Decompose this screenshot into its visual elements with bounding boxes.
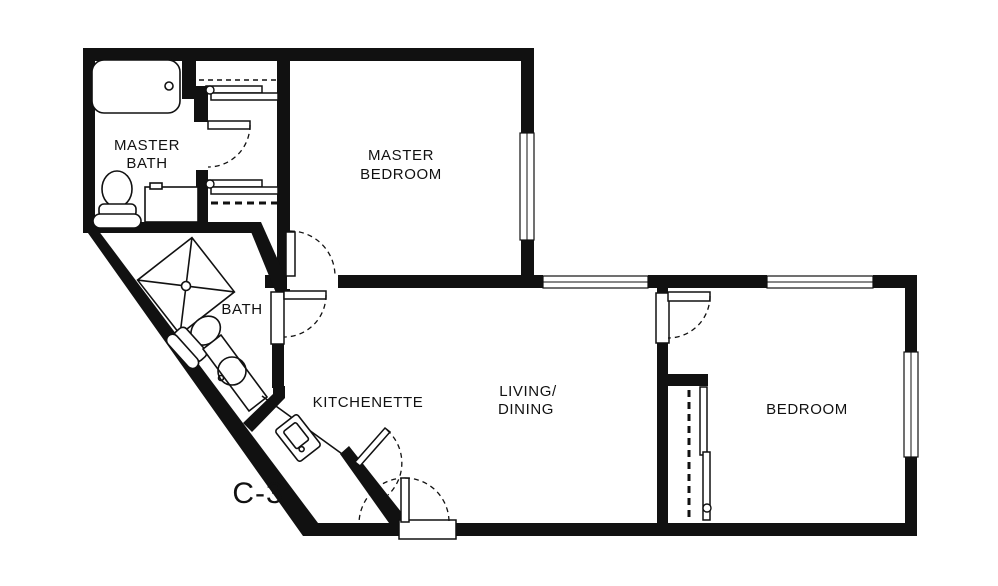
hall-west-wall	[272, 344, 284, 388]
hall-closet-bottom	[199, 180, 278, 203]
window-icon-bedroom-top	[767, 276, 873, 288]
master-bedroom-label-line1: MASTER	[368, 147, 434, 164]
tub-side-wall	[182, 48, 196, 99]
vanity-sink-icon	[145, 183, 198, 222]
bedroom-closet-header-wall	[657, 374, 708, 386]
bypass-door-icon	[211, 187, 278, 194]
bedroom-wall-stub-top	[657, 286, 668, 293]
master-bedroom-right-wall-upper	[521, 48, 534, 133]
window-icon-living	[543, 276, 648, 288]
toilet-icon	[93, 171, 141, 228]
master-bath-label-line1: MASTER	[114, 137, 180, 154]
master-bedroom-bottom-wall	[338, 275, 521, 288]
bathtub-icon	[92, 60, 180, 113]
window-icon-master-bedroom	[520, 133, 534, 240]
living-dining-label-line1: LIVING/	[499, 383, 557, 400]
living-dining-label-line2: DINING	[498, 401, 554, 418]
bedroom-closet	[689, 387, 711, 520]
bypass-door-icon	[211, 93, 278, 100]
window-icon-bedroom-right	[904, 352, 918, 457]
floor-plan-svg: MASTER BATH MASTER BEDROOM BATH KITCHENE…	[0, 0, 998, 586]
master-bedroom-door-swing-icon	[286, 231, 338, 289]
bypass-door-icon	[700, 387, 707, 455]
living-bedroom-wall	[657, 343, 668, 536]
bath-hall-door-swing-icon	[271, 291, 326, 344]
bedroom-right-wall-upper	[905, 275, 917, 352]
door-knob-icon	[206, 86, 214, 94]
kitchenette-closet-wall	[340, 446, 402, 523]
door-knob-icon	[703, 504, 711, 512]
windows	[520, 133, 918, 457]
entry-door-swing-icon	[399, 478, 456, 539]
closets	[190, 80, 711, 520]
unit-label: C-3	[232, 477, 283, 510]
door-knob-icon	[206, 180, 214, 188]
master-bath-door-swing-icon	[208, 121, 250, 167]
kitchenette-label: KITCHENETTE	[313, 394, 424, 411]
living-top-wall-a	[521, 275, 543, 288]
bedroom-door-swing-icon	[656, 292, 710, 343]
master-bath-label-line2: BATH	[126, 155, 167, 172]
top-exterior-wall	[83, 48, 534, 61]
bath-label: BATH	[221, 301, 262, 318]
floor-plan-page: MASTER BATH MASTER BEDROOM BATH KITCHENE…	[0, 0, 998, 586]
master-bedroom-label-line2: BEDROOM	[360, 166, 442, 183]
bedroom-label: BEDROOM	[766, 401, 848, 418]
kitchen-sink-icon	[275, 414, 322, 463]
